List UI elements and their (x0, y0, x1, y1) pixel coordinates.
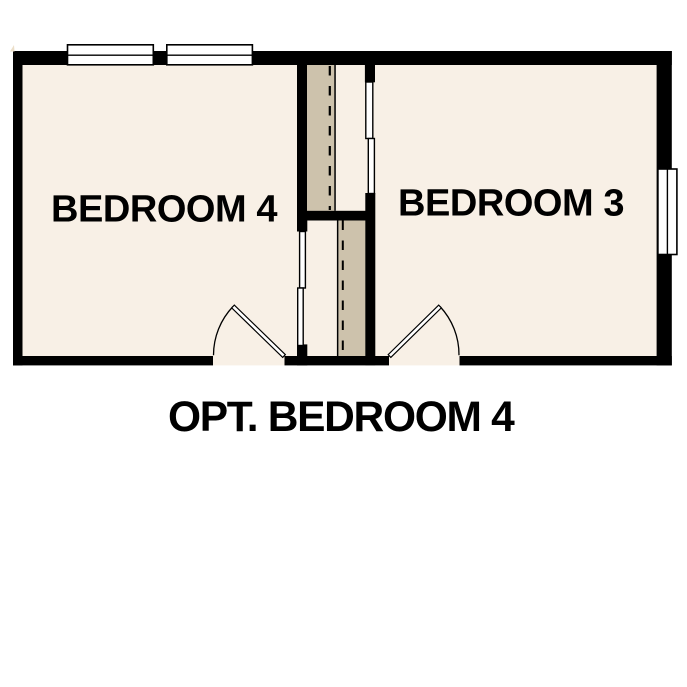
svg-text:OPT. BEDROOM 4: OPT. BEDROOM 4 (168, 394, 515, 441)
svg-text:BEDROOM 3: BEDROOM 3 (398, 183, 624, 225)
svg-text:BEDROOM 4: BEDROOM 4 (51, 189, 277, 231)
